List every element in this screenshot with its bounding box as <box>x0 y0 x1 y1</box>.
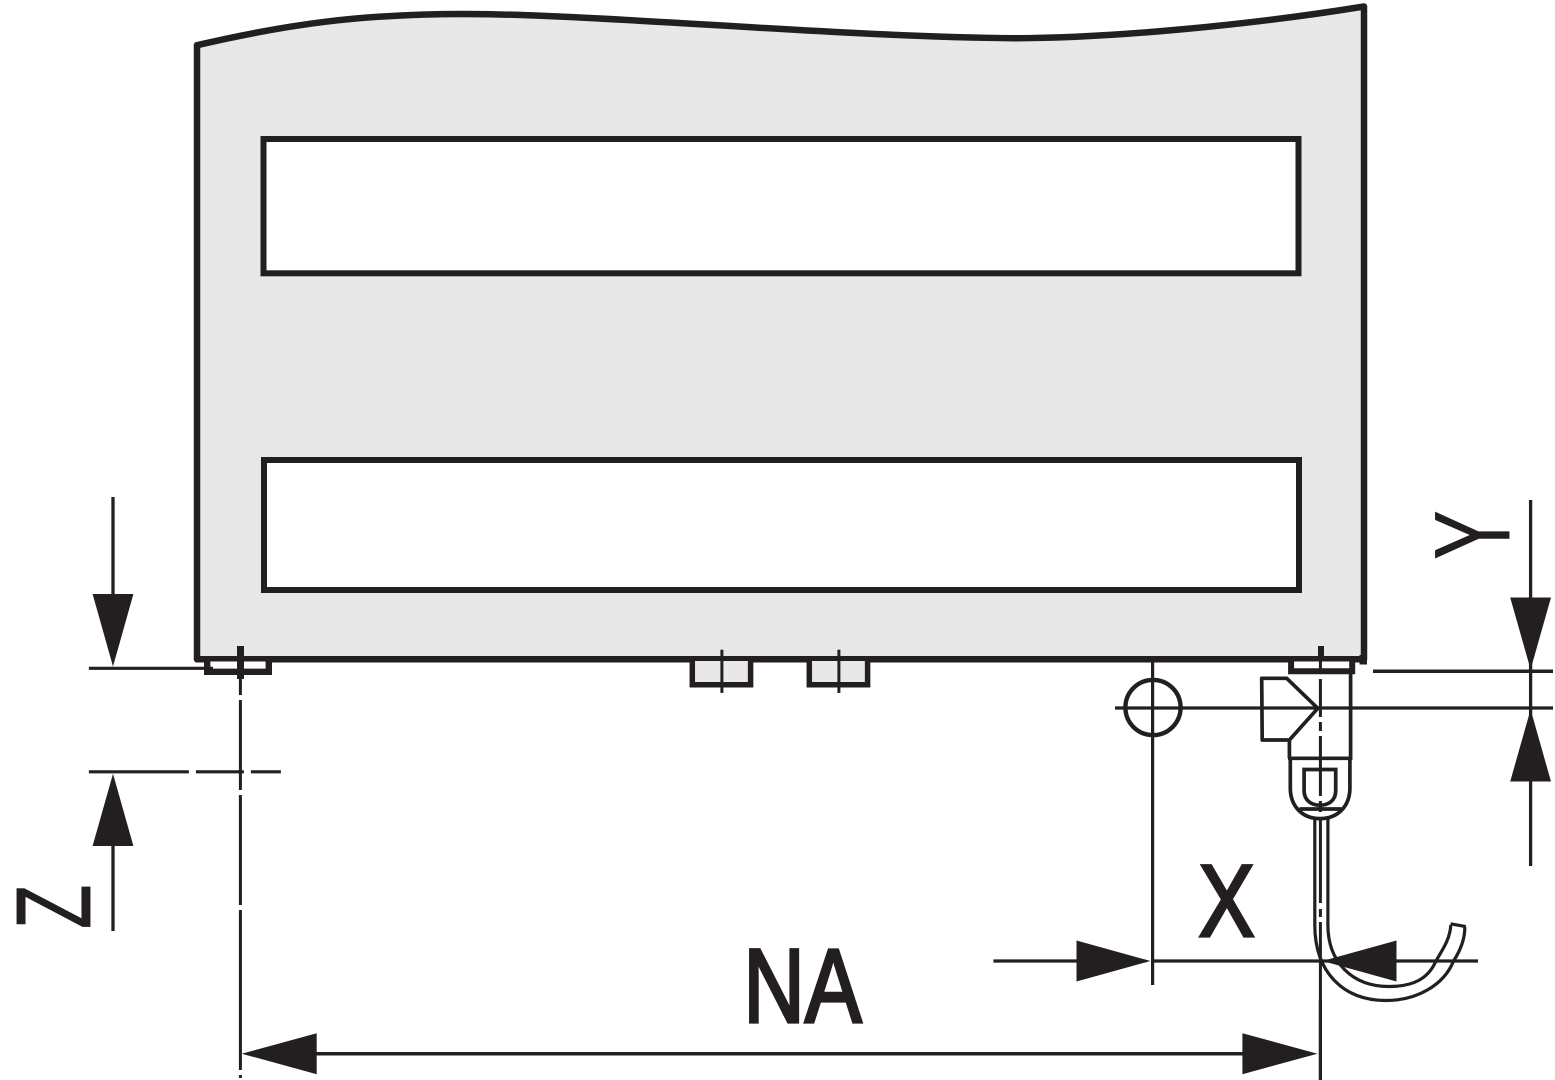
svg-text:Y: Y <box>1413 511 1532 560</box>
svg-text:X: X <box>1199 844 1255 958</box>
svg-text:NA: NA <box>743 929 862 1045</box>
svg-text:Z: Z <box>0 885 113 929</box>
